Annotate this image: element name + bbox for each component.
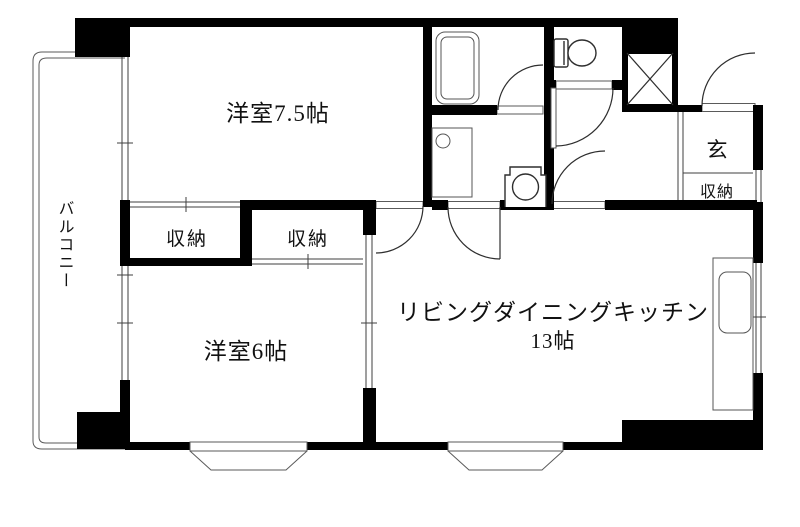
entry-door-opening [702,104,755,112]
hallway-door-arc [552,151,605,204]
room-label-western-6: 洋室6帖 [204,339,289,364]
wall-bottom-2 [307,442,448,450]
room7-door-opening [376,202,423,209]
window [117,57,133,200]
room-label-entrance-closet: 収納 [700,183,734,201]
wall-left-lower [120,380,130,412]
wall-bath-wash-divider [432,105,497,115]
room-labels: 洋室7.5帖 洋室6帖 リビングダイニングキッチン 13帖 収納 収納 玄 収納… [56,101,735,364]
elevator-shaft-icon [627,53,673,105]
window [756,170,761,202]
balcony-outline [33,52,125,449]
hallway-door-opening [553,202,605,209]
wall-top [128,18,678,27]
room-label-entrance: 玄 [707,138,728,162]
wall-corner-block-br [622,420,762,450]
wall-left-closet [120,200,130,266]
wall-right-lower [753,373,763,450]
wall-ev-bottom [622,105,702,112]
bathroom-door-opening [497,106,543,114]
washing-machine-icon [505,167,546,207]
room-label-closet-left: 収納 [166,228,208,250]
wall-divider-bottom [363,388,376,450]
sliding-door [252,254,363,269]
wall-closet-top-r [252,200,363,210]
floor-plan: 洋室7.5帖 洋室6帖 リビングダイニングキッチン 13帖 収納 収納 玄 収納… [0,0,800,527]
genkan-step-edge [678,112,683,203]
wall-ev-top-block [622,18,678,53]
window [117,265,133,380]
bathtub-icon [436,32,479,104]
wall-right-mid [753,202,763,263]
wall-corner-block-bl [77,412,130,449]
room-label-western-7-5: 洋室7.5帖 [226,101,330,126]
room-label-closet-right: 収納 [287,228,329,250]
wall-room75-bath [423,27,432,207]
wall-closet-mid [240,200,252,266]
room-label-ldk-size: 13帖 [531,329,576,353]
wall-ldk-top-a [432,200,448,210]
sliding-door [361,235,377,388]
washbasin-icon [432,128,472,197]
toilet-icon [554,39,596,67]
kitchen-counter-icon [713,258,753,410]
toilet-door-opening [556,81,612,89]
wall-bottom-3 [563,442,625,450]
bay-window [190,442,307,470]
wall-corner-block-tl [75,18,130,57]
wall-bottom-1 [125,442,190,450]
wall-right-upper [753,105,763,170]
room-label-balcony: バルコニー [56,200,74,290]
room7-door-arc [376,206,423,253]
wall-divider-top [363,200,376,235]
washroom-door [448,207,500,259]
sliding-door [128,197,240,212]
wall-closet-bottom-l [120,258,252,266]
wall-ldk-top-c [605,200,757,210]
toilet-door [551,88,613,148]
bay-window [448,442,563,470]
entry-door-arc [702,53,755,106]
room-label-ldk: リビングダイニングキッチン [397,300,709,325]
kitchen-sink-icon [719,272,751,333]
washroom-door-opening [448,202,500,209]
bathroom-door-arc [498,65,543,110]
